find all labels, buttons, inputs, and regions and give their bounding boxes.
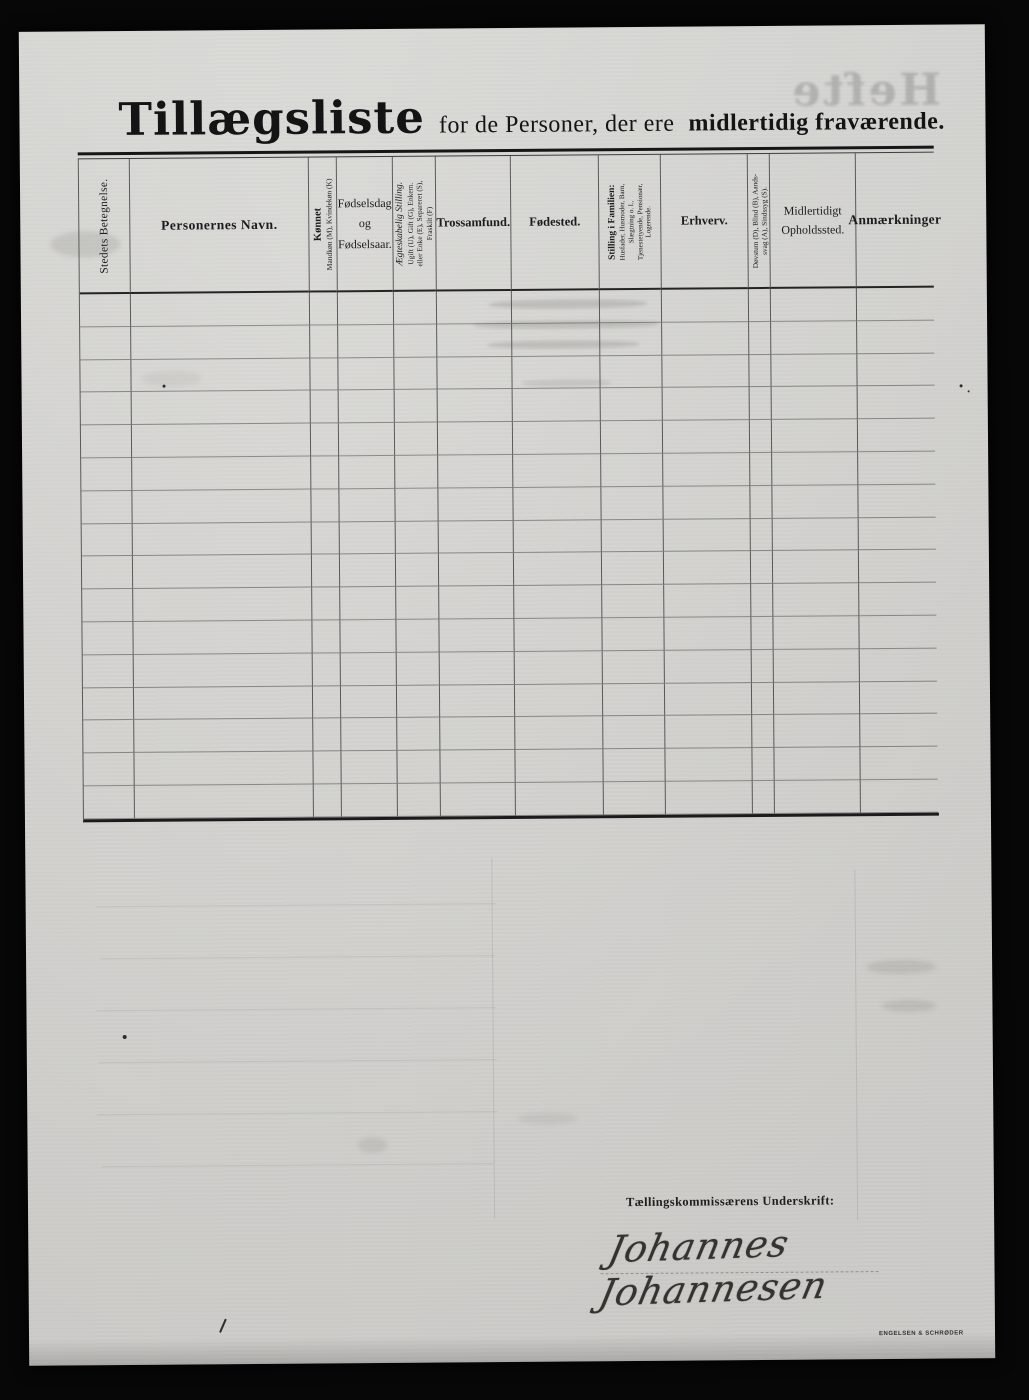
- table-cell-empty: [438, 521, 513, 554]
- table-cell-empty: [312, 653, 340, 686]
- table-cell-empty: [601, 519, 663, 552]
- table-cell-empty: [393, 357, 436, 390]
- table-cell-empty: [663, 519, 750, 552]
- table-cell-empty: [311, 620, 339, 653]
- bleedthrough-line: [99, 1059, 497, 1063]
- table-cell-empty: [84, 786, 134, 819]
- table-cell-empty: [773, 747, 859, 780]
- table-cell-empty: [663, 551, 750, 584]
- scanned-census-form: Hefte Tillægsliste for de Personer, der …: [19, 24, 995, 1366]
- table-cell-empty: [130, 325, 309, 359]
- col-header-label: Erhverv.: [681, 213, 728, 228]
- table-cell-empty: [662, 486, 749, 519]
- table-cell-empty: [131, 391, 310, 425]
- table-cell-empty: [340, 685, 396, 718]
- table-cell-empty: [83, 753, 133, 786]
- ink-speck: [960, 384, 963, 387]
- table-cell-empty: [751, 650, 773, 683]
- table-cell-empty: [856, 353, 934, 386]
- table-cell-empty: [313, 784, 341, 817]
- scan-smudge: [881, 1000, 936, 1012]
- scan-smudge: [866, 960, 936, 975]
- ink-speck: [163, 385, 166, 388]
- bleedthrough-line: [100, 955, 495, 959]
- col-header-label: Trossamfund.: [436, 215, 510, 231]
- table-cell-empty: [438, 586, 513, 619]
- table-cell-empty: [661, 289, 748, 322]
- table-cell-empty: [81, 425, 131, 458]
- table-cell-empty: [396, 685, 439, 718]
- table-cell-empty: [130, 293, 309, 327]
- table-cell-empty: [514, 684, 602, 717]
- table-cell-empty: [602, 716, 664, 749]
- table-cell-empty: [310, 489, 338, 522]
- signature-handwriting: Johannes Johannesen: [595, 1215, 1003, 1315]
- table-cell-empty: [396, 751, 439, 784]
- table-cell-empty: [771, 387, 857, 420]
- table-cell-empty: [749, 486, 771, 519]
- table-cell-empty: [131, 457, 310, 491]
- table-cell-empty: [394, 390, 437, 423]
- col-header-midlertidigt-opholdssted: Midlertidigt Opholdssted.: [769, 153, 856, 289]
- table-cell-empty: [600, 421, 662, 454]
- table-cell-empty: [858, 550, 936, 583]
- table-cell-empty: [513, 520, 601, 553]
- table-cell-empty: [312, 719, 340, 752]
- table-cell-empty: [857, 484, 935, 517]
- table-cell-empty: [133, 686, 312, 720]
- table-cell-empty: [512, 421, 600, 454]
- table-cell-empty: [662, 453, 749, 486]
- table-cell-empty: [337, 292, 393, 325]
- form-title-main: Tillægsliste: [118, 91, 425, 146]
- table-cell-empty: [393, 292, 436, 325]
- table-cell-empty: [860, 780, 938, 813]
- table-cell-empty: [339, 554, 395, 587]
- col-header-trossamfund: Trossamfund.: [435, 156, 511, 292]
- table-cell-empty: [81, 392, 131, 425]
- table-cell-empty: [395, 554, 438, 587]
- table-cell-empty: [772, 518, 858, 551]
- table-cell-empty: [310, 424, 338, 457]
- table-cell-empty: [857, 386, 935, 419]
- table-cell-empty: [749, 420, 771, 453]
- table-cell-empty: [82, 622, 132, 655]
- form-title-subtitle-bold: midlertidig fraværende.: [688, 109, 945, 138]
- table-cell-empty: [396, 718, 439, 751]
- table-cell-empty: [309, 325, 337, 358]
- table-cell-empty: [858, 616, 936, 649]
- col-header-label: Personernes Navn.: [161, 216, 278, 233]
- table-cell-empty: [397, 783, 440, 816]
- col-header-konnet: Kønnet Mandkøn (M), Kvindekøn (K): [308, 157, 337, 292]
- bleedthrough-line: [97, 1111, 497, 1115]
- table-cell-empty: [512, 454, 600, 487]
- table-cell-empty: [602, 683, 664, 716]
- table-cell-empty: [82, 524, 132, 557]
- table-cell-empty: [339, 587, 395, 620]
- table-cell-empty: [395, 587, 438, 620]
- table-cell-empty: [82, 556, 132, 589]
- table-cell-empty: [132, 588, 311, 622]
- table-cell-empty: [751, 748, 773, 781]
- col-header-erhverv: Erhverv.: [660, 154, 748, 290]
- table-cell-empty: [772, 583, 858, 616]
- table-cell-empty: [80, 360, 130, 393]
- table-cell-empty: [600, 388, 662, 421]
- table-cell-empty: [772, 551, 858, 584]
- table-cell-empty: [662, 387, 749, 420]
- table-cell-empty: [132, 522, 311, 556]
- table-cell-empty: [770, 354, 856, 387]
- table-cell-empty: [439, 685, 514, 718]
- table-cell-empty: [663, 617, 750, 650]
- table-cell-empty: [514, 717, 602, 750]
- table-cell-empty: [513, 618, 601, 651]
- table-cell-empty: [751, 682, 773, 715]
- table-cell-empty: [437, 389, 512, 422]
- col-header-sublabel: Husfader, Husmoder, Barn, Slægtning o. l…: [617, 183, 653, 260]
- ink-speck: [123, 1035, 127, 1039]
- table-cell-empty: [752, 781, 774, 814]
- table-cell-empty: [338, 489, 394, 522]
- table-cell-empty: [340, 751, 396, 784]
- table-cell-empty: [309, 358, 337, 391]
- table-cell-empty: [311, 522, 339, 555]
- table-cell-empty: [82, 589, 132, 622]
- table-cell-empty: [750, 551, 772, 584]
- table-cell-empty: [859, 747, 937, 780]
- census-table: Stedets Betegnelse. Personernes Navn. Kø…: [78, 153, 939, 822]
- table-cell-empty: [859, 714, 937, 747]
- col-header-label: Ægteskabelig Stilling.: [395, 181, 406, 265]
- table-cell-empty: [856, 288, 934, 321]
- table-cell-empty: [341, 784, 397, 817]
- bleedthrough-line: [96, 1007, 496, 1011]
- form-title-subtitle: for de Personer, der ere: [439, 111, 675, 140]
- table-cell-empty: [133, 653, 312, 687]
- table-cell-empty: [438, 553, 513, 586]
- table-cell-empty: [436, 357, 511, 390]
- bleedthrough-line: [102, 1163, 494, 1167]
- table-cell-empty: [748, 289, 770, 322]
- table-cell-empty: [512, 389, 600, 422]
- table-cell-empty: [132, 555, 311, 589]
- table-cell-empty: [514, 651, 602, 684]
- col-header-label: Kønnet: [312, 207, 323, 240]
- table-cell-empty: [395, 521, 438, 554]
- table-cell-empty: [771, 485, 857, 518]
- table-cell-empty: [773, 649, 859, 682]
- table-cell-empty: [80, 294, 130, 327]
- table-cell-empty: [83, 655, 133, 688]
- table-cell-empty: [132, 621, 311, 655]
- table-cell-empty: [83, 688, 133, 721]
- printer-mark: ENGELSEN & SCHRØDER: [879, 1330, 964, 1337]
- table-cell-empty: [859, 681, 937, 714]
- col-header-label: Midlertidigt Opholdssted.: [781, 201, 844, 239]
- table-cell-empty: [439, 652, 514, 685]
- table-cell-empty: [603, 782, 665, 815]
- col-header-dovstum-blind: Døvstum (D), Blind (B), Aands- svag (A),…: [747, 154, 770, 289]
- table-cell-empty: [311, 555, 339, 588]
- table-cell-empty: [602, 651, 664, 684]
- table-cell-empty: [394, 488, 437, 521]
- table-cell-empty: [440, 783, 515, 816]
- table-cell-empty: [311, 587, 339, 620]
- table-cell-empty: [337, 357, 393, 390]
- table-cell-empty: [438, 619, 513, 652]
- table-cell-empty: [436, 291, 511, 324]
- table-cell-empty: [859, 648, 937, 681]
- col-header-fodselsdag: Fødselsdag og Fødselsaar.: [336, 157, 393, 292]
- table-cell-empty: [395, 620, 438, 653]
- table-cell-empty: [601, 552, 663, 585]
- scanner-background: Hefte Tillægsliste for de Personer, der …: [0, 0, 1029, 1400]
- table-cell-empty: [600, 487, 662, 520]
- table-cell-empty: [312, 751, 340, 784]
- table-cell-empty: [749, 387, 771, 420]
- table-cell-empty: [749, 453, 771, 486]
- table-cell-empty: [601, 618, 663, 651]
- table-cell-empty: [664, 748, 751, 781]
- scan-smudge: [357, 1137, 387, 1153]
- col-header-sublabel: Mandkøn (M), Kvindekøn (K): [324, 178, 334, 270]
- table-cell-empty: [310, 456, 338, 489]
- table-cell-empty: [664, 683, 751, 716]
- table-cell-empty: [602, 749, 664, 782]
- table-cell-empty: [439, 750, 514, 783]
- table-cell-empty: [661, 322, 748, 355]
- table-cell-empty: [83, 720, 133, 753]
- table-cell-empty: [436, 324, 511, 357]
- table-cell-empty: [513, 585, 601, 618]
- table-cell-empty: [338, 423, 394, 456]
- table-cell-empty: [857, 419, 935, 452]
- table-cell-empty: [310, 391, 338, 424]
- col-header-stedets-betegnelse: Stedets Betegnelse.: [79, 159, 130, 294]
- table-cell-empty: [772, 616, 858, 649]
- table-cell-empty: [663, 584, 750, 617]
- table-cell-empty: [858, 583, 936, 616]
- table-cell-empty: [748, 322, 770, 355]
- table-cell-empty: [393, 324, 436, 357]
- table-cell-empty: [339, 521, 395, 554]
- table-cell-empty: [396, 652, 439, 685]
- table-cell-empty: [661, 355, 748, 388]
- table-cell-empty: [437, 455, 512, 488]
- table-cell-empty: [337, 325, 393, 358]
- table-cell-empty: [338, 456, 394, 489]
- table-cell-empty: [601, 585, 663, 618]
- table-cell-empty: [858, 517, 936, 550]
- table-cell-empty: [394, 423, 437, 456]
- table-cell-empty: [748, 355, 770, 388]
- table-cell-empty: [133, 719, 312, 753]
- table-cell-empty: [340, 718, 396, 751]
- table-cell-empty: [81, 458, 131, 491]
- signature-label: Tællingskommissærens Underskrift:: [626, 1193, 835, 1210]
- bleedthrough-line: [96, 903, 496, 907]
- table-cell-empty: [664, 715, 751, 748]
- pen-mark: [219, 1318, 227, 1333]
- table-cell-empty: [771, 419, 857, 452]
- table-cell-empty: [750, 518, 772, 551]
- table-cell-empty: [600, 454, 662, 487]
- table-cell-empty: [773, 682, 859, 715]
- col-header-label: Stedets Betegnelse.: [98, 178, 111, 273]
- col-header-aegteskabelig-stilling: Ægteskabelig Stilling. Ugift (U), Gift (…: [392, 157, 436, 292]
- form-title: Tillægsliste for de Personer, der ere mi…: [118, 86, 958, 146]
- col-header-label: Stilling i Familien:: [606, 184, 617, 260]
- table-cell-empty: [856, 320, 934, 353]
- table-cell-empty: [394, 456, 437, 489]
- table-cell-empty: [437, 488, 512, 521]
- col-header-stilling-i-familien: Stilling i Familien: Husfader, Husmoder,…: [598, 155, 661, 290]
- table-cell-empty: [134, 784, 313, 818]
- table-cell-empty: [513, 553, 601, 586]
- ink-speck: [968, 390, 970, 392]
- table-cell-empty: [770, 321, 856, 354]
- col-header-personernes-navn: Personernes Navn.: [129, 158, 309, 294]
- table-cell-empty: [80, 327, 130, 360]
- table-cell-empty: [664, 650, 751, 683]
- table-cell-empty: [770, 288, 856, 321]
- col-header-anmaerkninger: Anmærkninger: [855, 153, 934, 289]
- table-cell-empty: [514, 749, 602, 782]
- table-cell-empty: [312, 686, 340, 719]
- table-cell-empty: [751, 715, 773, 748]
- table-cell-empty: [773, 715, 859, 748]
- col-header-label: Fødselsdag og Fødselsaar.: [338, 193, 392, 255]
- table-cell-empty: [81, 491, 131, 524]
- table-cell-empty: [857, 452, 935, 485]
- table-cell-empty: [439, 717, 514, 750]
- bleedthrough-line: [854, 870, 858, 1220]
- col-header-fodested: Fødested.: [510, 155, 599, 291]
- table-cell-empty: [662, 420, 749, 453]
- table-cell-empty: [309, 292, 337, 325]
- table-cell-empty: [131, 424, 310, 458]
- table-cell-empty: [131, 489, 310, 523]
- table-cell-empty: [437, 422, 512, 455]
- scan-smudge: [517, 1112, 577, 1124]
- table-cell-empty: [133, 752, 312, 786]
- table-cell-empty: [340, 653, 396, 686]
- col-header-label: Anmærkninger: [848, 211, 941, 228]
- table-cell-empty: [339, 620, 395, 653]
- table-cell-empty: [338, 390, 394, 423]
- table-cell-empty: [774, 780, 860, 813]
- table-cell-empty: [512, 487, 600, 520]
- table-cell-empty: [665, 781, 752, 814]
- col-header-label: Fødested.: [529, 214, 580, 229]
- col-header-sublabel: Døvstum (D), Blind (B), Aands- svag (A),…: [750, 173, 769, 268]
- table-cell-empty: [750, 584, 772, 617]
- col-header-sublabel: Ugift (U), Gift (G), Enkem. eller Enke (…: [406, 180, 434, 266]
- table-cell-empty: [771, 452, 857, 485]
- table-cell-empty: [750, 617, 772, 650]
- table-cell-empty: [515, 782, 603, 815]
